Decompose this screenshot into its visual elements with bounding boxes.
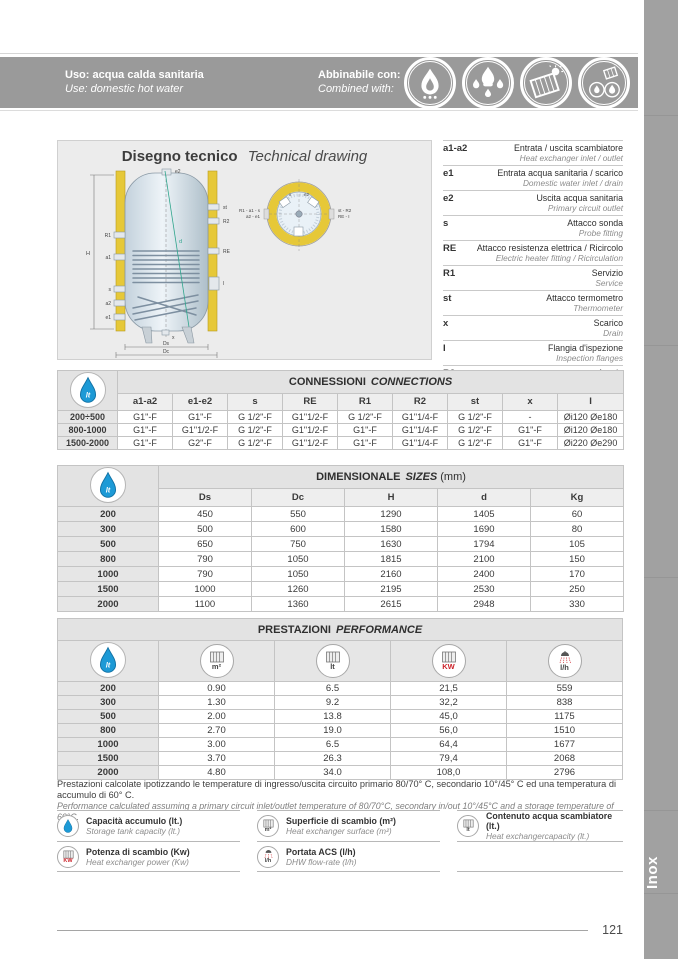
value-cell: G1"1/2-F [283, 424, 338, 437]
value-cell: 32,2 [391, 696, 507, 710]
value-cell: G1"-F [338, 437, 393, 450]
table-row: 200÷500G1"-FG1"-FG 1/2"-FG1"1/2-FG 1/2"-… [58, 411, 624, 424]
row-size-label: 800 [58, 552, 159, 567]
legend-code: st [443, 293, 473, 304]
value-cell: 3.00 [159, 738, 275, 752]
legend-label-en: Service [473, 278, 623, 288]
dhw-flow-shower-icon: l/h [507, 641, 623, 682]
legend-item: sAttacco sondaProbe fitting [443, 216, 623, 241]
legend-storage-capacity: Capacità accumulo (lt.)Storage tank capa… [57, 810, 240, 841]
value-cell: 1175 [507, 710, 623, 724]
legend-item: R1ServizioService [443, 266, 623, 291]
icons-legend: Capacità accumulo (lt.)Storage tank capa… [57, 810, 623, 872]
svg-text:lt: lt [106, 661, 111, 670]
column-header: Kg [531, 489, 624, 507]
table-row: 10003.006.564,41677 [58, 738, 623, 752]
table-row: 3005006001580169080 [58, 522, 624, 537]
tank-top-view: R1 - a1 - s a2 - e1 st - R2 RE - I x e2 [239, 179, 352, 251]
fitting-R2-label: R2 [223, 219, 230, 225]
connections-header-row: a1-a2e1-e2sRER1R2stxI [58, 393, 624, 410]
fitting-s-label: s [109, 287, 112, 293]
legend-label-it: Scarico [473, 318, 623, 328]
legend-label-en: Inspection flanges [473, 353, 623, 363]
column-header: x [503, 393, 558, 410]
row-size-label: 300 [58, 522, 159, 537]
table-row: 2004505501290140560 [58, 507, 624, 522]
solar-panel-icon [520, 57, 572, 109]
svg-text:lt: lt [106, 486, 111, 495]
legend-label-it: Attacco termometro [473, 293, 623, 303]
side-index-strip [644, 0, 678, 959]
column-header: Dc [252, 489, 345, 507]
fitting-I-label: I [223, 281, 224, 287]
flame-icon [404, 57, 456, 109]
value-cell: 750 [252, 537, 345, 552]
value-cell: 550 [252, 507, 345, 522]
exchanger-capacity-icon: lt [275, 641, 391, 682]
row-size-label: 1000 [58, 567, 159, 582]
value-cell: 838 [507, 696, 623, 710]
row-size-label: 1500 [58, 752, 159, 766]
multi-source-icon [578, 57, 630, 109]
value-cell: 1510 [507, 724, 623, 738]
value-cell: 1.30 [159, 696, 275, 710]
use-label-en: Use: domestic hot water [65, 82, 204, 96]
table-row: 15003.7026.379,42068 [58, 752, 623, 766]
legend-code: e1 [443, 168, 473, 179]
legend-item: stAttacco termometroThermometer [443, 291, 623, 316]
value-cell: 1050 [252, 552, 345, 567]
column-header: d [438, 489, 531, 507]
legend-label-it: Attacco resistenza elettrica / Ricircolo [473, 243, 623, 253]
strip-divider [644, 810, 678, 811]
drawing-title-en: Technical drawing [248, 148, 368, 165]
value-cell: G1"-F [173, 411, 228, 424]
value-cell: G1"-F [118, 437, 173, 450]
use-label-it: Uso: acqua calda sanitaria [65, 68, 204, 82]
value-cell: 559 [507, 682, 623, 696]
storage-capacity-droplet-icon [57, 815, 79, 837]
table-row: 50065075016301794105 [58, 537, 624, 552]
legend-item: e2Uscita acqua sanitariaPrimary circuit … [443, 191, 623, 216]
legend-label-it: Servizio [473, 268, 623, 278]
value-cell: G 1/2"-F [338, 411, 393, 424]
value-cell: G1"1/4-F [393, 424, 448, 437]
row-size-label: 1500 [58, 582, 159, 597]
combined-label-en: Combined with: [318, 82, 401, 96]
value-cell: Øi120 Øe180 [558, 424, 624, 437]
connections-table: lt CONNESSIONICONNECTIONS a1-a2e1-e2sRER… [57, 370, 624, 450]
legend-code: a1-a2 [443, 143, 473, 154]
legend-label-it: Uscita acqua sanitaria [473, 193, 623, 203]
dimensions-table: lt DIMENSIONALESIZES(mm) DsDcHdKg 200450… [57, 465, 624, 612]
value-cell: 2530 [438, 582, 531, 597]
value-cell: G1"-F [503, 424, 558, 437]
value-cell: 1690 [438, 522, 531, 537]
legend-code: RE [443, 243, 473, 254]
value-cell: 150 [531, 552, 624, 567]
row-size-label: 1000 [58, 738, 159, 752]
value-cell: 1290 [345, 507, 438, 522]
value-cell: G 1/2"-F [228, 424, 283, 437]
use-label: Uso: acqua calda sanitaria Use: domestic… [65, 68, 204, 96]
legend-exchanger-surface: m² Superficie di scambio (m²)Heat exchan… [257, 810, 440, 841]
row-size-label: 800 [58, 724, 159, 738]
row-size-label: 300 [58, 696, 159, 710]
column-header: H [345, 489, 438, 507]
band-bottom-rule [0, 110, 638, 111]
dhw-flow-shower-icon: l/h [257, 846, 279, 868]
value-cell: 1000 [159, 582, 252, 597]
value-cell: 80 [531, 522, 624, 537]
fitting-a2-label: a2 [105, 301, 111, 307]
value-cell: 2615 [345, 597, 438, 612]
tank-technical-drawing: H e2 d [58, 167, 431, 359]
exchanger-surface-icon: m² [257, 815, 279, 837]
capacity-droplet-icon: lt [58, 641, 159, 682]
legend-label-en: Primary circuit outlet [473, 203, 623, 213]
topview-e2-label: e2 [304, 192, 310, 197]
exchanger-capacity-icon: lt [457, 815, 479, 837]
value-cell: 105 [531, 537, 624, 552]
fitting-R1-label: R1 [105, 233, 112, 239]
svg-text:lt: lt [85, 391, 90, 400]
value-cell: 64,4 [391, 738, 507, 752]
row-size-label: 2000 [58, 597, 159, 612]
value-cell: 2948 [438, 597, 531, 612]
legend-item: e1Entrata acqua sanitaria / scaricoDomes… [443, 166, 623, 191]
row-size-label: 800-1000 [58, 424, 118, 437]
legend-exchanger-capacity: lt Contenuto acqua scambiatore (lt.)Heat… [457, 810, 623, 841]
fittings-legend: a1-a2Entrata / uscita scambiatoreHeat ex… [443, 140, 623, 391]
legend-label-en: Electric heater fitting / Ricirculation [473, 253, 623, 263]
value-cell: G1"1/2-F [283, 437, 338, 450]
column-header: a1-a2 [118, 393, 173, 410]
value-cell: 250 [531, 582, 624, 597]
legend-label-en: Heat exchanger inlet / outlet [473, 153, 623, 163]
legend-item: REAttacco resistenza elettrica / Ricirco… [443, 241, 623, 266]
value-cell: - [503, 411, 558, 424]
value-cell: 79,4 [391, 752, 507, 766]
value-cell: 9.2 [275, 696, 391, 710]
topview-right-labels-2: RE - I [338, 214, 350, 219]
value-cell: 4.80 [159, 766, 275, 780]
value-cell: G 1/2"-F [448, 411, 503, 424]
combined-label-it: Abbinabile con: [318, 68, 401, 82]
legend-code: e2 [443, 193, 473, 204]
capacity-droplet-icon: lt [58, 466, 159, 507]
combined-label: Abbinabile con: Combined with: [318, 68, 401, 96]
dimensions-title: DIMENSIONALESIZES(mm) [159, 466, 624, 489]
value-cell: G1"-F [118, 411, 173, 424]
column-header: e1-e2 [173, 393, 228, 410]
value-cell: 1405 [438, 507, 531, 522]
legend-label-en: Drain [473, 328, 623, 338]
value-cell: 1260 [252, 582, 345, 597]
performance-table: PRESTAZIONIPERFORMANCE lt m² [57, 618, 623, 780]
value-cell: 450 [159, 507, 252, 522]
fitting-RE-label: RE [223, 249, 231, 255]
topview-left-labels-2: a2 - e1 [246, 214, 261, 219]
legend-exchanger-power: KW Potenza di scambio (Kw)Heat exchanger… [57, 841, 240, 872]
value-cell: 1815 [345, 552, 438, 567]
value-cell: 2100 [438, 552, 531, 567]
value-cell: G 1/2"-F [228, 437, 283, 450]
value-cell: 56,0 [391, 724, 507, 738]
datasheet-page: Inox Uso: acqua calda sanitaria Use: dom… [0, 0, 678, 959]
value-cell: 19.0 [275, 724, 391, 738]
column-header: R2 [393, 393, 448, 410]
connections-title: CONNESSIONICONNECTIONS [118, 371, 624, 394]
value-cell: G1"1/4-F [393, 437, 448, 450]
dim-Ds-label: Ds [163, 341, 170, 347]
value-cell: 2.70 [159, 724, 275, 738]
performance-title: PRESTAZIONIPERFORMANCE [58, 619, 623, 641]
value-cell: G1"1/4-F [393, 411, 448, 424]
legend-code: R1 [443, 268, 473, 279]
value-cell: 1580 [345, 522, 438, 537]
row-size-label: 200 [58, 507, 159, 522]
value-cell: 2.00 [159, 710, 275, 724]
value-cell: 2160 [345, 567, 438, 582]
value-cell: G2"-F [173, 437, 228, 450]
legend-label-en: Thermometer [473, 303, 623, 313]
dim-d-label: d [179, 239, 182, 245]
topview-left-labels-1: R1 - a1 - s [239, 208, 261, 213]
legend-item: IFlangia d'ispezioneInspection flanges [443, 341, 623, 366]
table-row: 2000.906.521,5559 [58, 682, 623, 696]
flame-water-icon [462, 57, 514, 109]
legend-label-en: Domestic water inlet / drain [473, 178, 623, 188]
exchanger-power-icon: KW [57, 846, 79, 868]
section-tab-inox: Inox [644, 833, 678, 913]
legend-code: s [443, 218, 473, 229]
fitting-x-label: x [172, 335, 175, 341]
value-cell: 0.90 [159, 682, 275, 696]
value-cell: G 1/2"-F [448, 437, 503, 450]
value-cell: G 1/2"-F [448, 424, 503, 437]
drawing-title: Disegno tecnico Technical drawing [58, 148, 431, 165]
table-row: 20001100136026152948330 [58, 597, 624, 612]
value-cell: 790 [159, 552, 252, 567]
value-cell: 26.3 [275, 752, 391, 766]
dim-H-label: H [86, 251, 90, 257]
header-band: Uso: acqua calda sanitaria Use: domestic… [0, 57, 638, 108]
value-cell: 170 [531, 567, 624, 582]
row-size-label: 200 [58, 682, 159, 696]
table-row: 800-1000G1"-FG1"1/2-FG 1/2"-FG1"1/2-FG1"… [58, 424, 624, 437]
value-cell: 330 [531, 597, 624, 612]
column-header: I [558, 393, 624, 410]
table-row: 3001.309.232,2838 [58, 696, 623, 710]
value-cell: 108,0 [391, 766, 507, 780]
row-size-label: 2000 [58, 766, 159, 780]
value-cell: G1"-F [118, 424, 173, 437]
value-cell: 13.8 [275, 710, 391, 724]
table-row: 1500-2000G1"-FG2"-FG 1/2"-FG1"1/2-FG1"-F… [58, 437, 624, 450]
strip-divider [644, 577, 678, 578]
exchanger-power-icon: KW [391, 641, 507, 682]
value-cell: 1360 [252, 597, 345, 612]
page-number: 121 [593, 923, 623, 937]
column-header: R1 [338, 393, 393, 410]
drawing-title-it: Disegno tecnico [122, 148, 238, 165]
exchanger-surface-icon: m² [159, 641, 275, 682]
legend-empty-cell [457, 841, 623, 872]
value-cell: 500 [159, 522, 252, 537]
value-cell: G 1/2"-F [228, 411, 283, 424]
legend-label-en: Probe fitting [473, 228, 623, 238]
table-row: 1000790105021602400170 [58, 567, 624, 582]
column-header: s [228, 393, 283, 410]
value-cell: 1794 [438, 537, 531, 552]
value-cell: 2195 [345, 582, 438, 597]
table-row: 20004.8034.0108,02796 [58, 766, 623, 780]
value-cell: G1"1/2-F [283, 411, 338, 424]
legend-item: a1-a2Entrata / uscita scambiatoreHeat ex… [443, 141, 623, 166]
table-row: 5002.0013.845,01175 [58, 710, 623, 724]
technical-drawing-panel: Disegno tecnico Technical drawing H e2 [57, 140, 432, 360]
legend-label-it: Attacco sonda [473, 218, 623, 228]
value-cell: 60 [531, 507, 624, 522]
table-row: 15001000126021952530250 [58, 582, 624, 597]
value-cell: 45,0 [391, 710, 507, 724]
value-cell: Øi120 Øe180 [558, 411, 624, 424]
value-cell: 790 [159, 567, 252, 582]
footer-rule [57, 930, 588, 931]
table-row: 8002.7019.056,01510 [58, 724, 623, 738]
value-cell: 1050 [252, 567, 345, 582]
column-header: RE [283, 393, 338, 410]
value-cell: 2796 [507, 766, 623, 780]
fitting-st-label: st [223, 205, 228, 211]
dim-Dc-label: Dc [163, 349, 170, 355]
legend-label-it: Flangia d'ispezione [473, 343, 623, 353]
value-cell: 2068 [507, 752, 623, 766]
value-cell: 1630 [345, 537, 438, 552]
fitting-e2-label: e2 [175, 169, 181, 175]
legend-label-it: Entrata / uscita scambiatore [473, 143, 623, 153]
note-it: Prestazioni calcolate ipotizzando le tem… [57, 779, 623, 801]
value-cell: 650 [159, 537, 252, 552]
value-cell: 21,5 [391, 682, 507, 696]
value-cell: Øi220 Øe290 [558, 437, 624, 450]
column-header: Ds [159, 489, 252, 507]
value-cell: 3.70 [159, 752, 275, 766]
fitting-e1-label: e1 [105, 315, 111, 321]
column-header: st [448, 393, 503, 410]
value-cell: 34.0 [275, 766, 391, 780]
legend-item: xScaricoDrain [443, 316, 623, 341]
table-row: 800790105018152100150 [58, 552, 624, 567]
legend-code: x [443, 318, 473, 329]
strip-divider [644, 115, 678, 116]
value-cell: G1"1/2-F [173, 424, 228, 437]
legend-dhw-flow: l/h Portata ACS (l/h)DHW flow-rate (l/h) [257, 841, 440, 872]
performance-icon-row: lt m² l [58, 641, 623, 682]
top-rule [0, 53, 638, 54]
value-cell: 6.5 [275, 738, 391, 752]
value-cell: G1"-F [338, 424, 393, 437]
legend-label-it: Entrata acqua sanitaria / scarico [473, 168, 623, 178]
value-cell: 1677 [507, 738, 623, 752]
topview-right-labels-1: st - R2 [338, 208, 352, 213]
strip-divider [644, 345, 678, 346]
row-size-label: 500 [58, 537, 159, 552]
value-cell: 1100 [159, 597, 252, 612]
value-cell: 6.5 [275, 682, 391, 696]
row-size-label: 1500-2000 [58, 437, 118, 450]
value-cell: 2400 [438, 567, 531, 582]
row-size-label: 200÷500 [58, 411, 118, 424]
fitting-a1-label: a1 [105, 255, 111, 261]
value-cell: 600 [252, 522, 345, 537]
capacity-droplet-icon: lt [58, 371, 118, 411]
row-size-label: 500 [58, 710, 159, 724]
legend-code: I [443, 343, 473, 354]
value-cell: G1"-F [503, 437, 558, 450]
